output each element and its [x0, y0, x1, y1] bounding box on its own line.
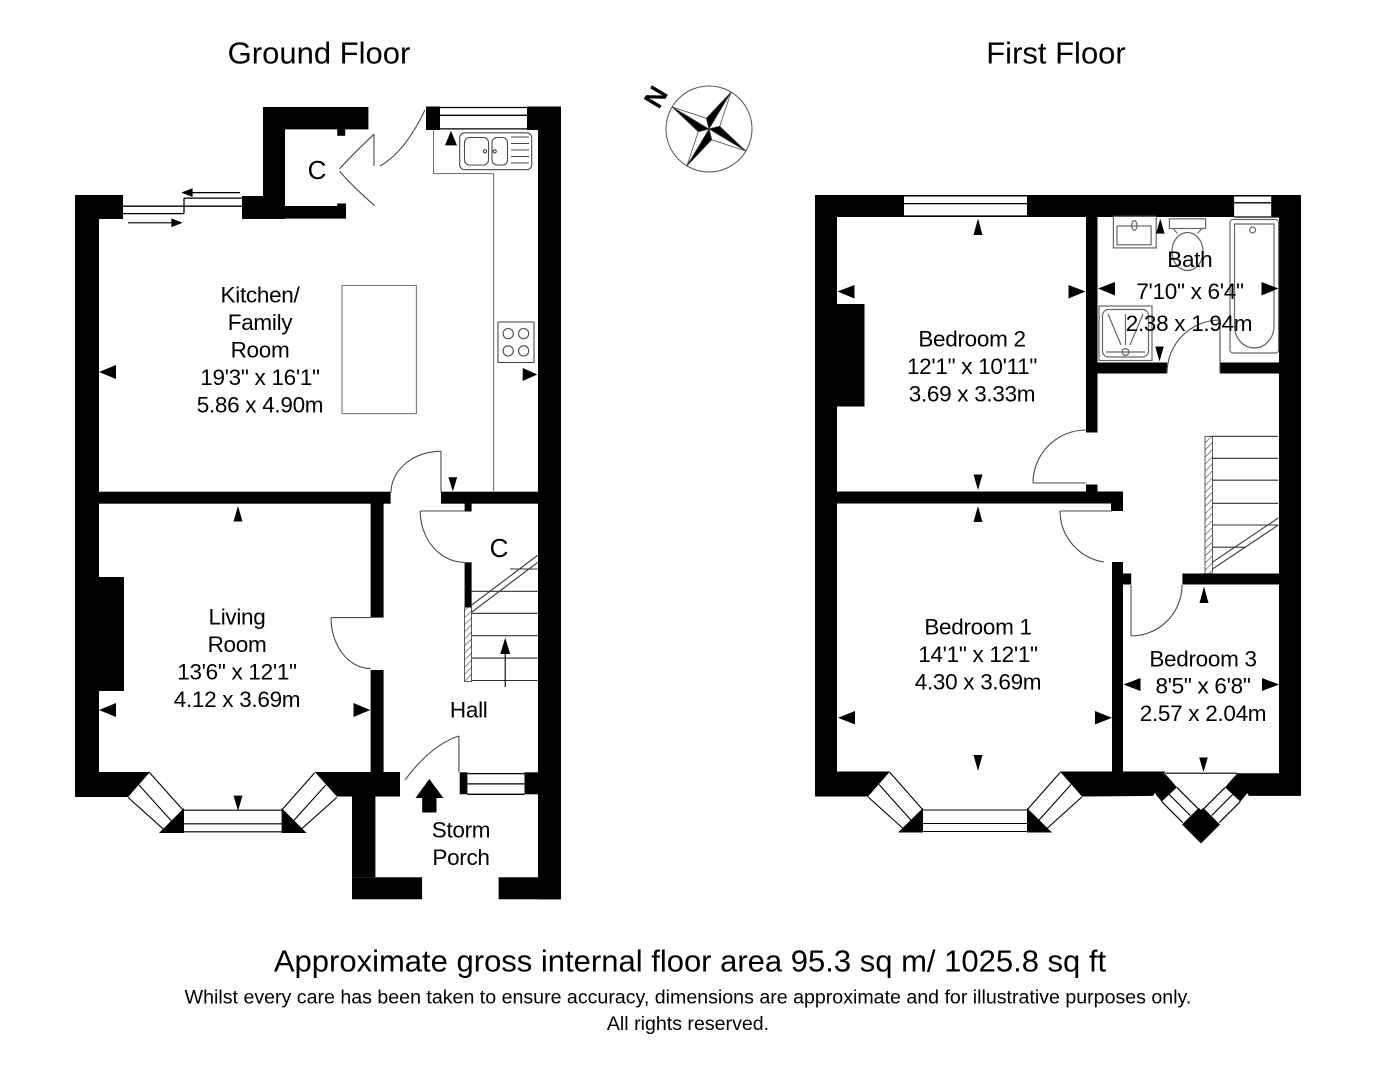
svg-text:Family: Family [228, 310, 293, 335]
svg-text:Room: Room [231, 338, 290, 363]
svg-text:8'5" x 6'8": 8'5" x 6'8" [1155, 674, 1250, 699]
svg-text:7'10" x 6'4": 7'10" x 6'4" [1136, 279, 1244, 304]
svg-text:14'1" x 12'1": 14'1" x 12'1" [918, 642, 1038, 667]
svg-text:Bedroom 3: Bedroom 3 [1149, 646, 1256, 671]
svg-text:2.38 x 1.94m: 2.38 x 1.94m [1126, 311, 1252, 336]
svg-text:4.30 x 3.69m: 4.30 x 3.69m [915, 669, 1041, 694]
svg-text:19'3" x 16'1": 19'3" x 16'1" [200, 365, 320, 390]
svg-text:2.57 x 2.04m: 2.57 x 2.04m [1140, 701, 1266, 726]
svg-text:Living: Living [209, 605, 266, 630]
svg-text:4.12 x 3.69m: 4.12 x 3.69m [174, 687, 300, 712]
svg-text:12'1" x 10'11": 12'1" x 10'11" [907, 354, 1037, 379]
svg-text:Whilst every care has been tak: Whilst every care has been taken to ensu… [185, 987, 1192, 1009]
svg-text:Approximate gross internal flo: Approximate gross internal floor area 95… [274, 944, 1107, 979]
svg-text:Bath: Bath [1167, 247, 1212, 272]
svg-text:Room: Room [208, 632, 267, 657]
svg-text:Storm: Storm [432, 818, 491, 843]
svg-text:First Floor: First Floor [986, 36, 1126, 71]
svg-text:Ground Floor: Ground Floor [228, 36, 411, 71]
svg-text:All rights reserved.: All rights reserved. [607, 1013, 769, 1035]
svg-text:5.86 x 4.90m: 5.86 x 4.90m [197, 393, 323, 418]
svg-text:C: C [308, 155, 327, 185]
svg-text:C: C [490, 533, 509, 563]
svg-text:Porch: Porch [432, 845, 489, 870]
svg-text:Kitchen/: Kitchen/ [221, 283, 301, 308]
svg-text:Bedroom 1: Bedroom 1 [924, 615, 1031, 640]
svg-text:3.69 x 3.33m: 3.69 x 3.33m [909, 382, 1035, 407]
svg-text:Hall: Hall [450, 698, 488, 723]
svg-text:13'6" x 12'1": 13'6" x 12'1" [177, 660, 297, 685]
svg-text:Bedroom 2: Bedroom 2 [918, 327, 1025, 352]
